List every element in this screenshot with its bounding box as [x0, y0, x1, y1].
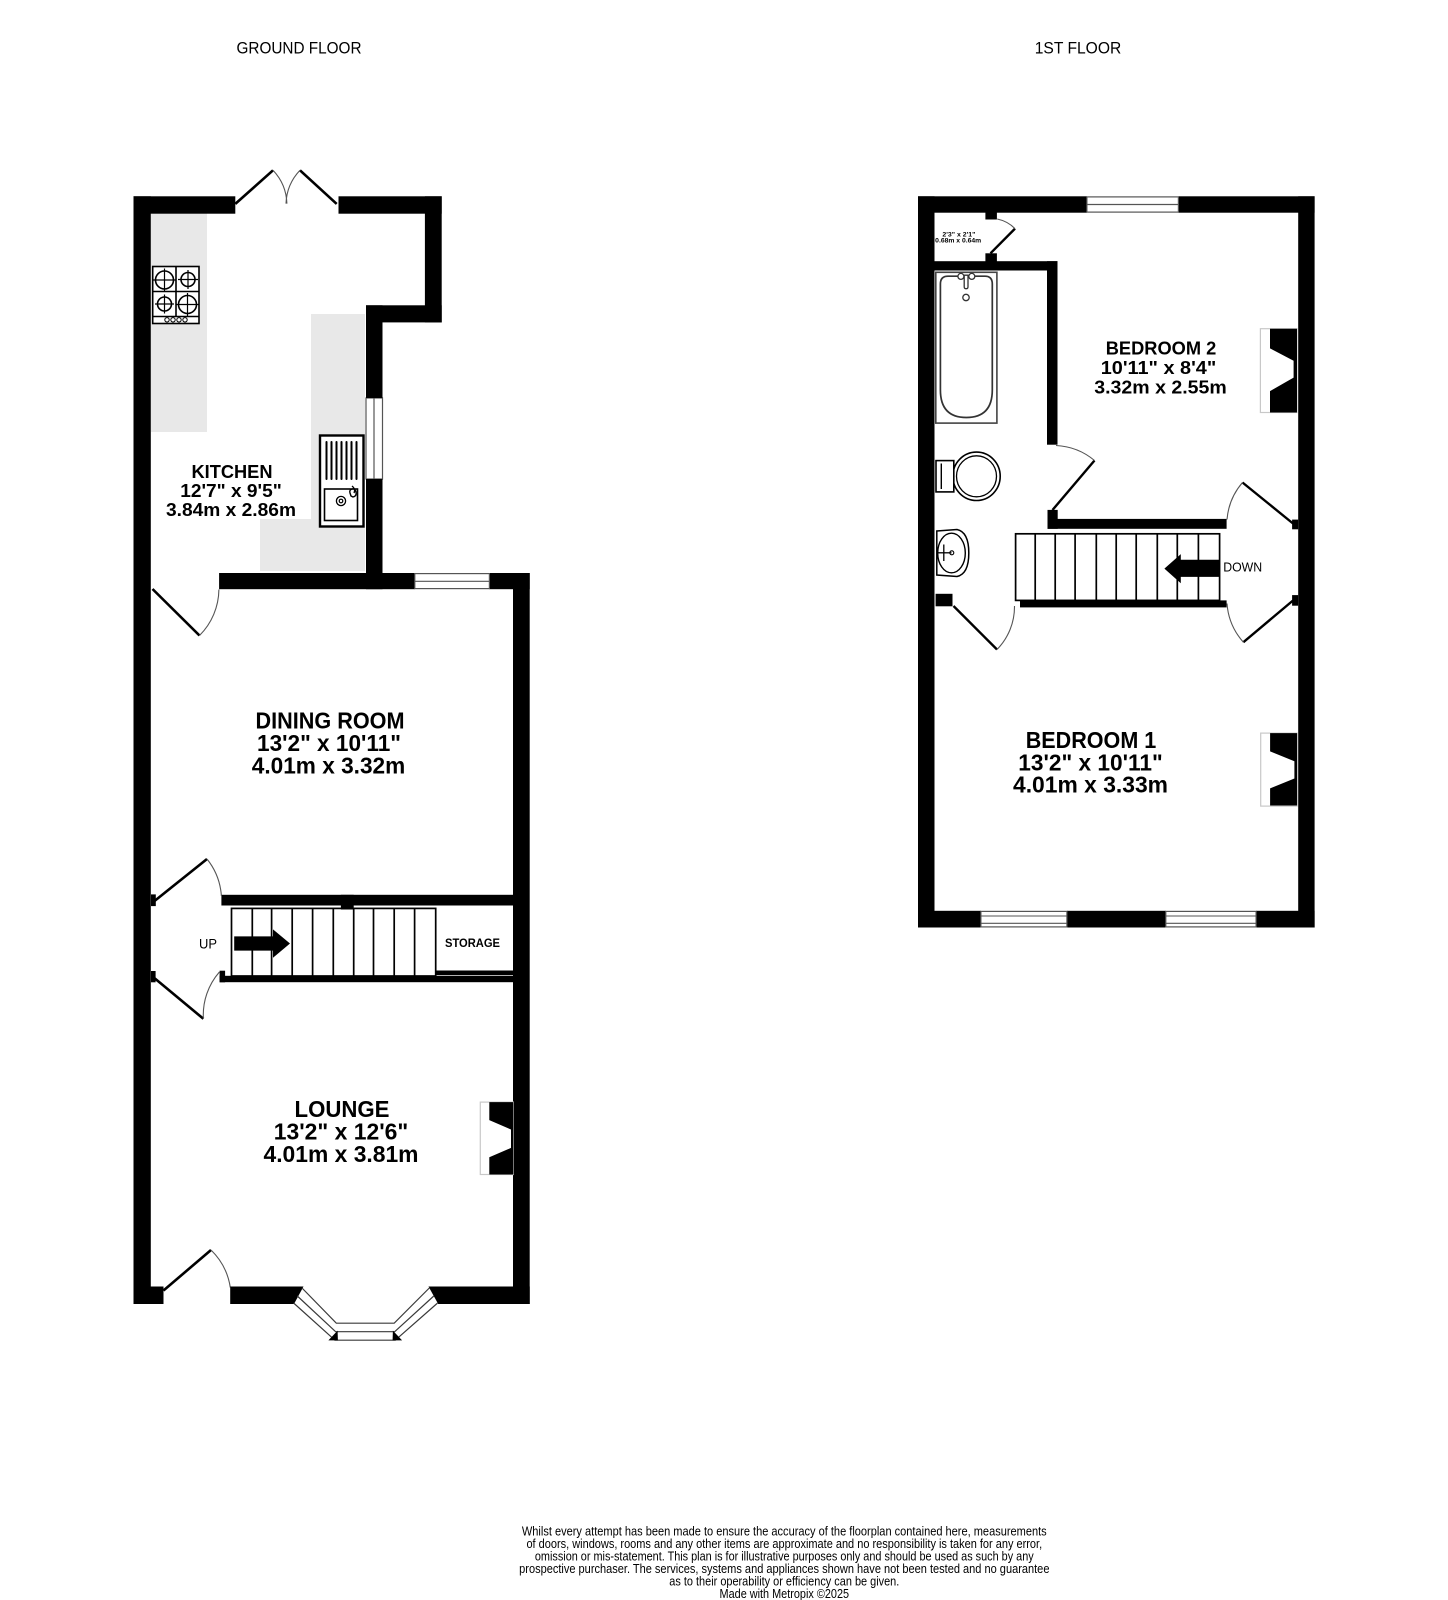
svg-text:GROUND FLOOR: GROUND FLOOR: [237, 39, 362, 58]
svg-text:BEDROOM 2: BEDROOM 2: [1106, 338, 1217, 359]
svg-text:4.01m x 3.32m: 4.01m x 3.32m: [252, 753, 406, 779]
svg-text:STORAGE: STORAGE: [445, 936, 500, 950]
svg-text:3.84m x 2.86m: 3.84m x 2.86m: [166, 499, 296, 520]
svg-text:UP: UP: [199, 937, 217, 952]
svg-text:0.68m x 0.64m: 0.68m x 0.64m: [935, 238, 981, 245]
svg-text:Made with Metropix ©2025: Made with Metropix ©2025: [720, 1586, 850, 1600]
svg-text:10'11" x 8'4": 10'11" x 8'4": [1101, 357, 1217, 378]
svg-text:DOWN: DOWN: [1223, 561, 1262, 575]
svg-text:4.01m x 3.33m: 4.01m x 3.33m: [1013, 772, 1168, 798]
svg-text:4.01m x 3.81m: 4.01m x 3.81m: [264, 1141, 419, 1167]
svg-text:KITCHEN: KITCHEN: [192, 461, 273, 482]
svg-text:3.32m x 2.55m: 3.32m x 2.55m: [1094, 377, 1227, 398]
svg-text:1ST FLOOR: 1ST FLOOR: [1035, 39, 1122, 58]
svg-text:12'7" x 9'5": 12'7" x 9'5": [180, 480, 282, 501]
